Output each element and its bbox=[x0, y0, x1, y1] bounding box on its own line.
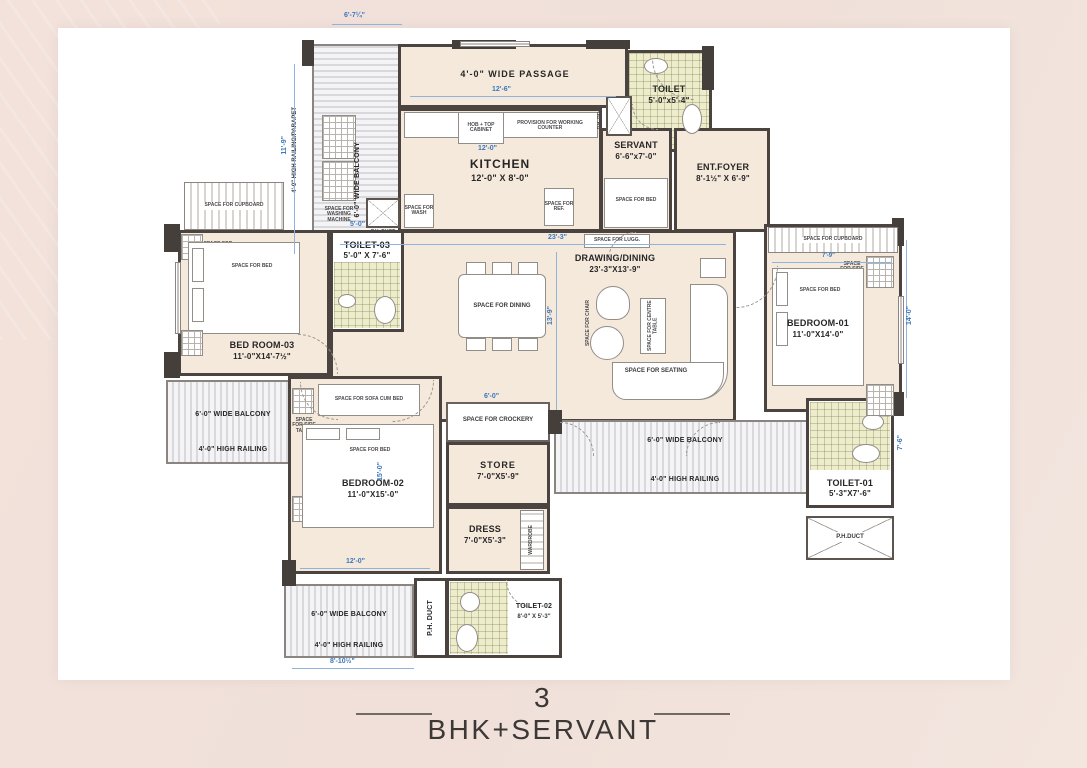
servant-name: SERVANT bbox=[602, 140, 670, 151]
balcony-middle-railing: 4'-0" HIGH RAILING bbox=[610, 476, 760, 485]
cupboard-bedroom-01: SPACE FOR CUPBOARD bbox=[768, 227, 898, 253]
ph-duct-label: P.H. DUCT bbox=[371, 230, 395, 236]
dim-crockery-width: 6'-0" bbox=[484, 393, 499, 400]
servant-bed-label: SPACE FOR BED bbox=[606, 196, 666, 206]
dim-toilet01-height: 7'-6" bbox=[897, 435, 904, 450]
bedroom-01-name: BEDROOM-01 bbox=[770, 318, 866, 329]
wall-block bbox=[586, 40, 630, 49]
dim-kitchen-width: 12'-0" bbox=[478, 145, 497, 152]
wall-block bbox=[164, 352, 180, 378]
ref-label: SPACE FOR REF. bbox=[544, 202, 574, 213]
pillow bbox=[346, 428, 380, 440]
centre-table: SPACE FOR CENTRE TABLE bbox=[640, 298, 666, 354]
dim-bedroom02-height: 15'-0" bbox=[377, 462, 384, 481]
toilet-03-size: 5'-0" X 7'-6" bbox=[332, 251, 402, 260]
toilet-01-size: 5'-3"X7'-6" bbox=[810, 489, 890, 498]
balcony-bottom-railing: 4'-0" HIGH RAILING bbox=[292, 642, 406, 651]
seating-label: SPACE FOR SEATING bbox=[625, 368, 687, 375]
dining-chair bbox=[492, 338, 512, 351]
cupboard-label: SPACE FOR CUPBOARD bbox=[203, 202, 264, 210]
wc-toilet-02 bbox=[456, 624, 478, 652]
kitchen-name: KITCHEN bbox=[440, 158, 560, 171]
drawing-name: DRAWING/DINING bbox=[556, 252, 674, 264]
hob-label: HOB + TOP CABINET bbox=[459, 123, 503, 134]
ref-label-wrap: SPACE FOR REF. bbox=[544, 196, 574, 218]
pillow bbox=[192, 248, 204, 282]
wc-toilet-01 bbox=[852, 444, 880, 463]
crockery-label: SPACE FOR CROCKERY bbox=[448, 416, 548, 425]
dining-table: SPACE FOR DINING bbox=[458, 274, 546, 338]
wash-label: SPACE FOR WASH bbox=[404, 206, 434, 217]
bed-label: SPACE FOR BED bbox=[232, 264, 273, 270]
ph-duct-top-label: P.H. DUCT bbox=[598, 105, 604, 129]
foyer-name: ENT.FOYER bbox=[678, 162, 768, 173]
toilet-top-name: TOILET bbox=[634, 84, 704, 95]
utility-sink-unit bbox=[322, 115, 356, 159]
bedroom-03-size: 11'-0"X14'-7½" bbox=[202, 352, 322, 361]
cupboard-bedroom-03: SPACE FOR CUPBOARD bbox=[184, 182, 284, 230]
pillow bbox=[306, 428, 340, 440]
dim-drawing-height: 13'-9" bbox=[547, 306, 554, 325]
ph-duct-compact-label: P.H.DUCT bbox=[820, 532, 880, 542]
bedroom-03-name: BED ROOM-03 bbox=[202, 340, 322, 351]
dim-line bbox=[292, 668, 414, 669]
dim-drawing-width: 23'-3" bbox=[548, 234, 567, 241]
floor-plan-page: HOB + TOP CABINET SPACE FOR DINING SPACE… bbox=[0, 0, 1087, 768]
dim-left-wrap: 11'-9" bbox=[278, 120, 290, 170]
dim-line bbox=[556, 252, 557, 410]
ph-duct-bottom-label-wrap: P.H. DUCT bbox=[424, 588, 438, 648]
ph-duct-bottom-label: P.H. DUCT bbox=[427, 600, 435, 636]
dim-t01-wrap: 7'-6" bbox=[894, 420, 906, 466]
drawing-size: 23'-3"X13'-9" bbox=[556, 265, 674, 275]
bed-label-wrap: SPACE FOR BED bbox=[330, 446, 410, 456]
store-size: 7'-0"X5'-9" bbox=[448, 472, 548, 481]
balcony-left-railing: 4'-0" HIGH RAILING bbox=[176, 446, 290, 455]
seating-label-wrap: SPACE FOR SEATING bbox=[606, 366, 706, 376]
provision-label-wrap: PROVISION FOR WORKING COUNTER bbox=[508, 116, 592, 136]
balcony-bottom-label: 6'-0" WIDE BALCONY bbox=[292, 610, 406, 620]
wardrobe-label: WARDROBE bbox=[529, 525, 535, 555]
toilet-02-name: TOILET-02 bbox=[506, 602, 562, 612]
wc-toilet-03 bbox=[374, 296, 396, 324]
dim-toilet03-width: 5'-0" bbox=[350, 221, 365, 228]
kitchen-hob: HOB + TOP CABINET bbox=[458, 112, 504, 144]
dim-bottom-balcony: 8'-10½" bbox=[330, 658, 355, 665]
window-bedroom-03 bbox=[175, 262, 181, 334]
wall-block bbox=[282, 560, 296, 586]
dining-chair bbox=[518, 338, 538, 351]
side-table bbox=[181, 330, 203, 356]
balcony-tl-label-wrap: 6'-0" WIDE BALCONY bbox=[352, 100, 364, 260]
dining-label: SPACE FOR DINING bbox=[473, 303, 530, 310]
dim-passage-width: 12'-6" bbox=[492, 86, 511, 93]
bedroom-02-name: BEDROOM-02 bbox=[318, 478, 428, 489]
dim-top-left: 6'-7¼" bbox=[344, 12, 365, 19]
balcony-left-label: 6'-0" WIDE BALCONY bbox=[176, 410, 290, 420]
dim-b02h-wrap: 15'-0" bbox=[374, 448, 386, 494]
wall-block bbox=[302, 40, 314, 66]
dim-left-height: 11'-9" bbox=[281, 136, 288, 155]
dim-cupboard-width: 7'-9" bbox=[822, 253, 835, 259]
wash-label-wrap: SPACE FOR WASH bbox=[404, 198, 434, 224]
dim-line bbox=[340, 244, 726, 245]
dim-line bbox=[332, 24, 402, 25]
title-line-left bbox=[356, 713, 432, 715]
bedroom-02-size: 11'-0"X15'-0" bbox=[318, 490, 428, 499]
parapet-label-wrap: 4'-0" HIGH RAILING/PARAPET bbox=[288, 55, 302, 245]
balcony-middle-label: 6'-0" WIDE BALCONY bbox=[600, 436, 770, 446]
centre-table-label: SPACE FOR CENTRE TABLE bbox=[648, 299, 659, 353]
washbasin-toilet-01 bbox=[862, 414, 884, 430]
pillow bbox=[776, 272, 788, 306]
kitchen-size: 12'-0" X 8'-0" bbox=[440, 173, 560, 183]
side-table bbox=[866, 384, 894, 416]
passage-label: 4'-0" WIDE PASSAGE bbox=[420, 68, 610, 80]
washbasin-toilet-03 bbox=[338, 294, 356, 308]
pillow bbox=[192, 288, 204, 322]
dim-line bbox=[772, 262, 892, 263]
foyer-size: 8'-1½" X 6'-9" bbox=[678, 174, 768, 183]
toilet-top-size: 5'-0"x5'-4" bbox=[634, 96, 704, 105]
toilet-03-name: TOILET-03 bbox=[332, 240, 402, 250]
cupboard-label: SPACE FOR CUPBOARD bbox=[801, 237, 864, 243]
servant-size: 6'-6"x7'-0" bbox=[602, 152, 670, 161]
dim-b01-wrap: 14'-0" bbox=[903, 290, 915, 340]
bed-label-wrap: SPACE FOR BED bbox=[224, 262, 280, 272]
window-passage bbox=[460, 41, 530, 47]
dim-bedroom01-height: 14'-0" bbox=[906, 306, 913, 325]
ph-duct-box-balcony bbox=[366, 198, 400, 228]
bed-label: SPACE FOR BED bbox=[800, 288, 841, 294]
bed-label-wrap: SPACE FOR BED bbox=[790, 286, 850, 296]
armchair bbox=[596, 286, 630, 320]
bedroom-01-size: 11'-0"X14'-0" bbox=[770, 330, 866, 339]
dim-line bbox=[410, 96, 616, 97]
dining-chair bbox=[466, 338, 486, 351]
side-table bbox=[866, 256, 894, 288]
dim-line bbox=[294, 64, 295, 254]
bed-bedroom-03 bbox=[188, 242, 300, 334]
wall-block bbox=[164, 224, 180, 252]
store-name: STORE bbox=[448, 460, 548, 471]
washbasin-toilet-02 bbox=[460, 592, 480, 612]
tv-unit bbox=[700, 258, 726, 278]
dim-line bbox=[300, 568, 430, 569]
ph-duct-box-top bbox=[606, 96, 632, 136]
dress-name: DRESS bbox=[450, 524, 520, 535]
wardrobe: WARDROBE bbox=[520, 510, 544, 570]
chair-label-wrap: SPACE FOR CHAIR bbox=[584, 288, 594, 358]
dim-drawing-h-wrap: 13'-9" bbox=[544, 290, 556, 340]
plan-title: 3 BHK+SERVANT bbox=[440, 698, 646, 730]
washing-machine bbox=[322, 161, 356, 201]
ph-duct-top-label-wrap: P.H. DUCT bbox=[596, 98, 605, 136]
toilet-02-size: 8'-0" X 5'-3" bbox=[506, 613, 562, 622]
dim-bedroom02-width: 12'-0" bbox=[346, 558, 365, 565]
armchair bbox=[590, 326, 624, 360]
provision-label: PROVISION FOR WORKING COUNTER bbox=[508, 121, 592, 132]
toilet-01-name: TOILET-01 bbox=[810, 478, 890, 488]
dress-size: 7'-0"X5'-3" bbox=[450, 536, 520, 545]
chair-label: SPACE FOR CHAIR bbox=[586, 300, 592, 346]
wc-toilet-top bbox=[682, 104, 702, 134]
ph-duct-label-wrap: P.H. DUCT bbox=[366, 228, 400, 238]
title-line-right bbox=[654, 713, 730, 715]
